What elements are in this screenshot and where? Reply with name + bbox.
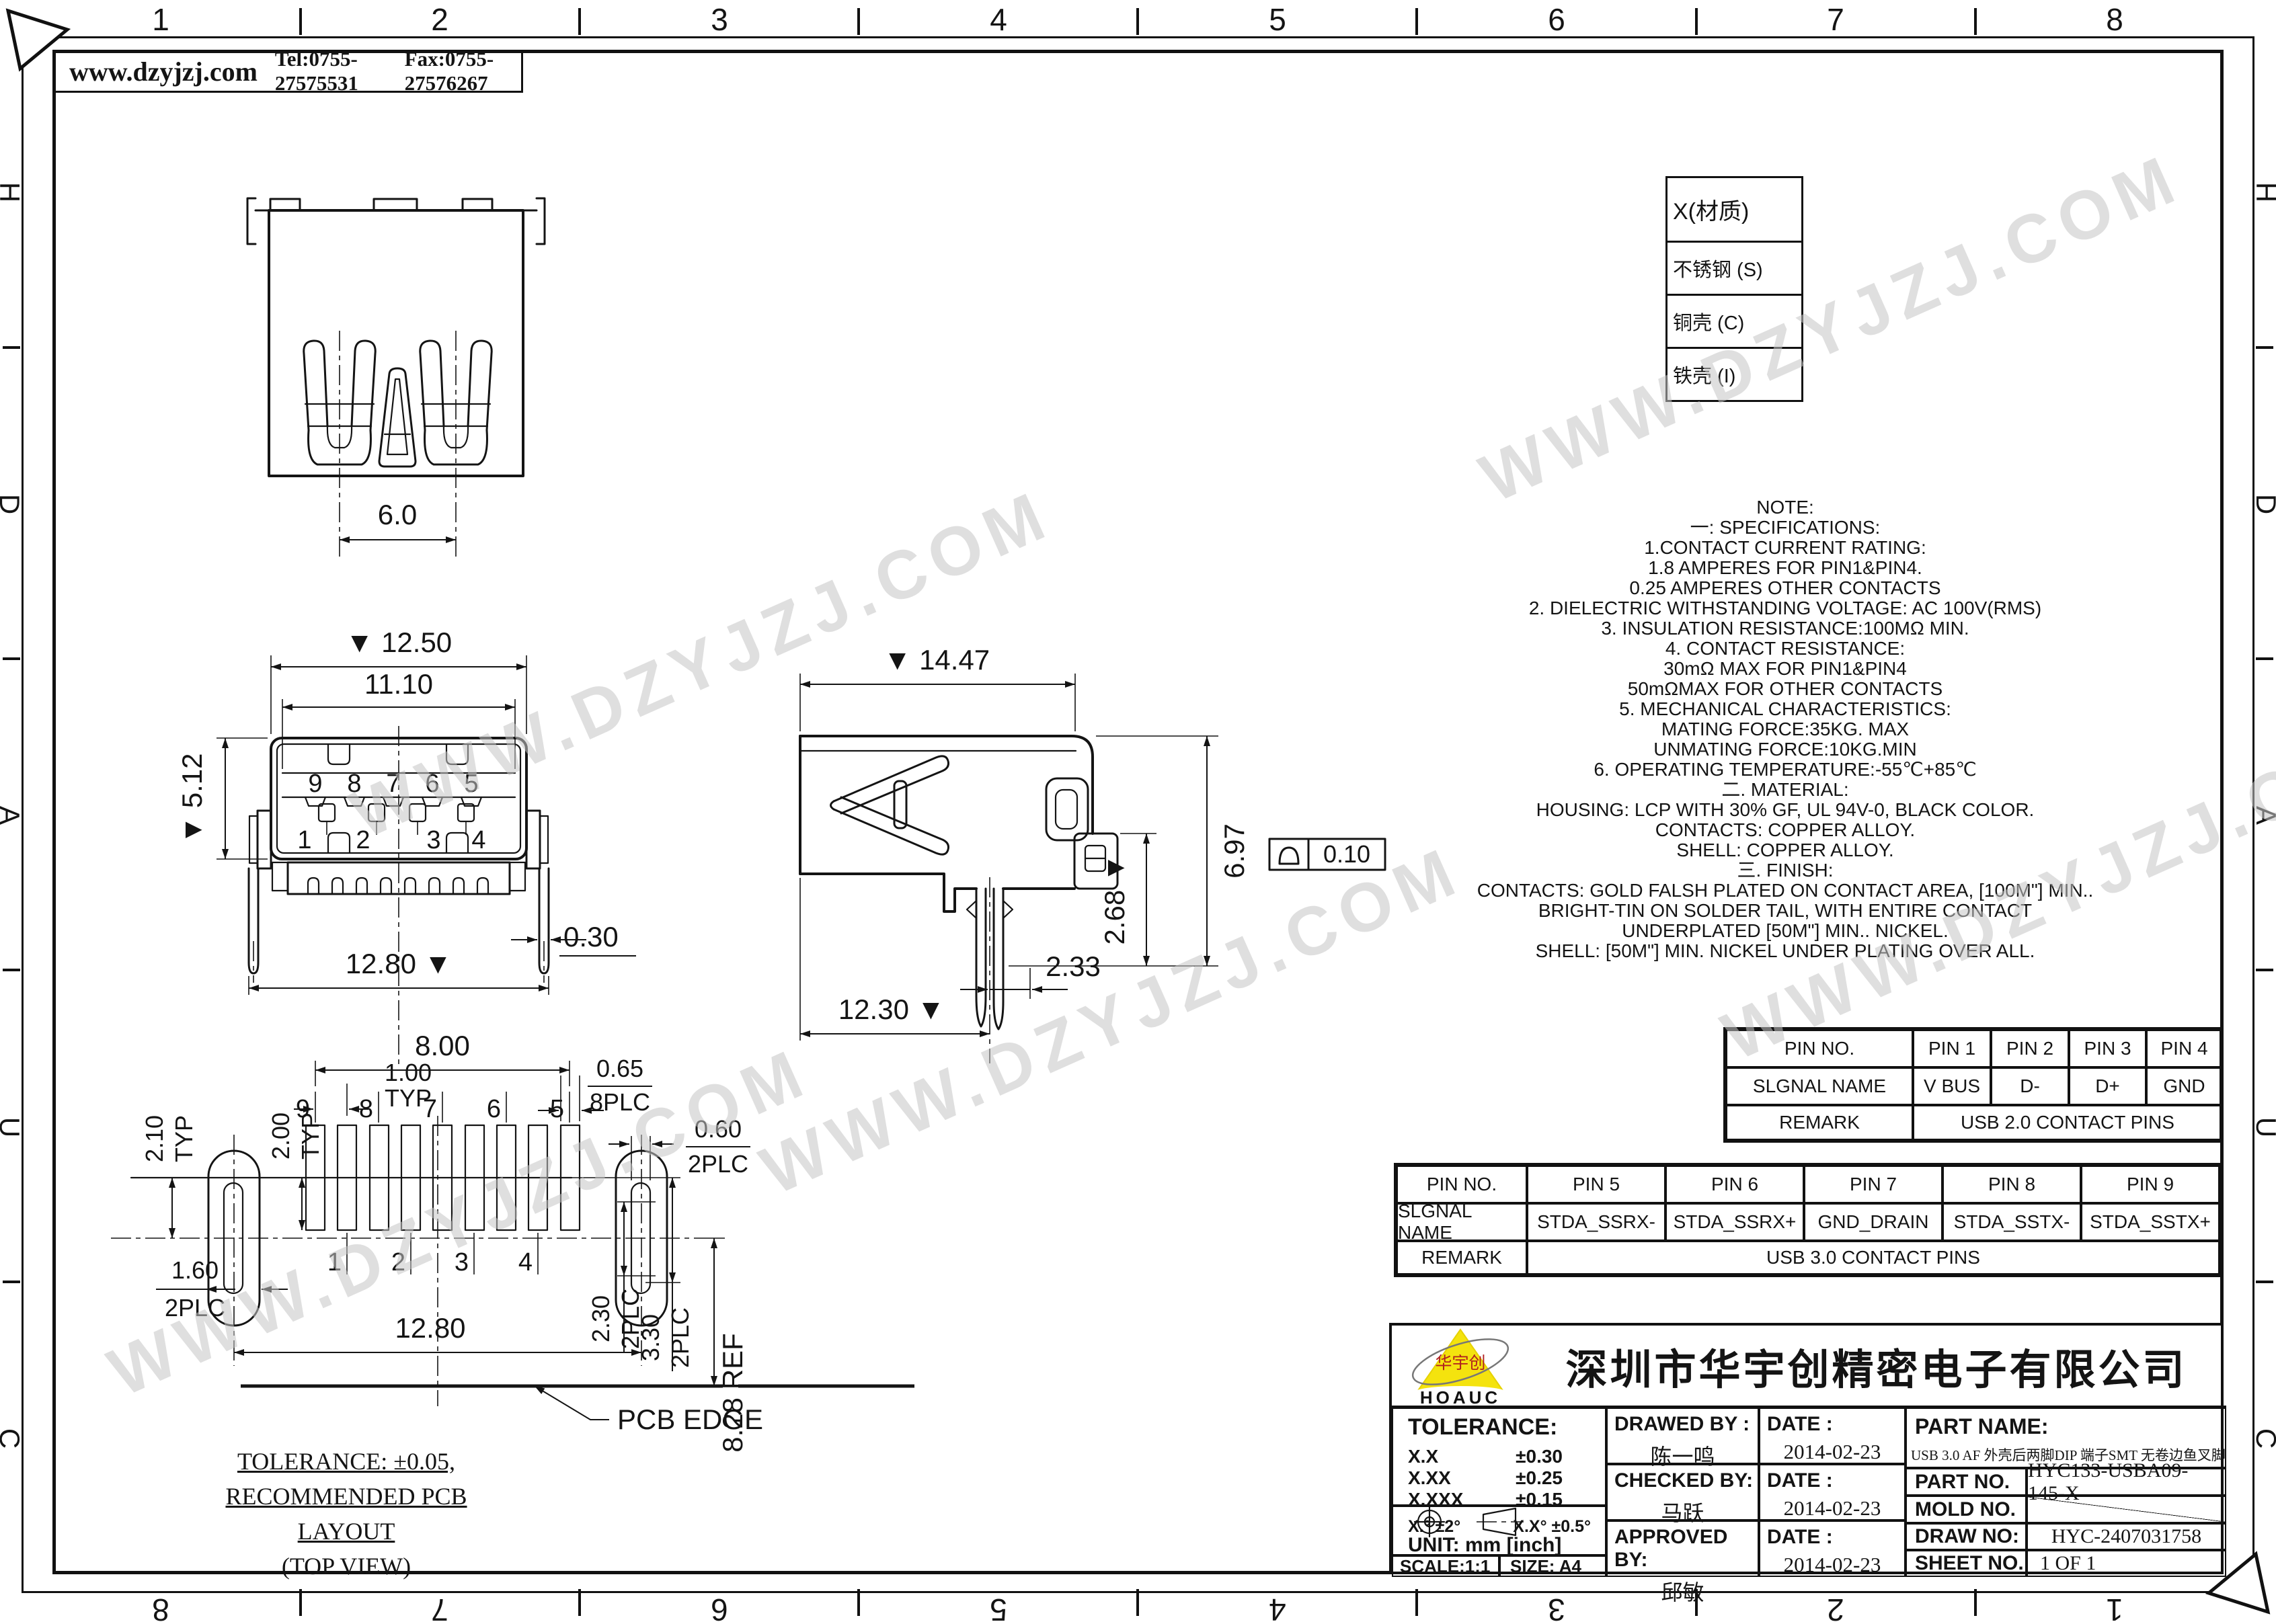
mold-no-label: MOLD NO. [1906, 1496, 2027, 1523]
table-cell: PIN 3 [2069, 1030, 2146, 1067]
table-cell: D- [1991, 1067, 2069, 1105]
note-line: BRIGHT-TIN ON SOLDER TAIL, WITH ENTIRE C… [1328, 901, 2242, 921]
draw-no-label: DRAW NO: [1906, 1523, 2027, 1550]
zone-number-top: 1 [141, 1, 181, 38]
dim-layout-b-note: 2PLC [666, 1307, 694, 1368]
pin-table-usb2: PIN NO. PIN 1 PIN 2 PIN 3 PIN 4 SLGNAL N… [1723, 1027, 2222, 1143]
zone-letter-left: C [0, 1425, 26, 1452]
material-row: 铁壳 (I) [1667, 349, 1801, 400]
profile-symbol-icon [1280, 848, 1298, 864]
dim-layout-pitch: 1.00 [385, 1059, 432, 1086]
table-cell: PIN 2 [1991, 1030, 2069, 1067]
pin-number: 8 [347, 770, 361, 798]
dim-layout-pitch-note: TYP [385, 1084, 432, 1112]
table-cell: PIN 8 [1943, 1166, 2081, 1203]
note-line: 0.25 AMPERES OTHER CONTACTS [1328, 578, 2242, 598]
dim-layout-row1-note: TYP [170, 1115, 198, 1162]
dim-side-bottom: 12.30 ▼ [838, 993, 945, 1025]
sheet-no-label: SHEET NO. [1906, 1550, 2027, 1577]
pad-number: 2 [391, 1248, 405, 1276]
pin-number: 9 [308, 770, 322, 798]
table-cell: USB 2.0 CONTACT PINS [1913, 1105, 2222, 1140]
zone-number-bottom: 6 [699, 1592, 740, 1624]
material-row: 铜壳 (C) [1667, 296, 1801, 349]
dim-front-height: ▼ 5.12 [176, 754, 208, 844]
zone-number-top: 7 [1815, 1, 1856, 38]
note-line: 50mΩMAX FOR OTHER CONTACTS [1328, 679, 2242, 699]
tolerance-row: X.X±0.30 [1408, 1446, 1563, 1467]
note-line: 5. MECHANICAL CHARACTERISTICS: [1328, 699, 2242, 719]
zone-tick [2256, 346, 2273, 349]
part-no-label: PART NO. [1906, 1468, 2027, 1496]
table-cell: PIN 1 [1913, 1030, 1991, 1067]
zone-number-bottom: 1 [2094, 1592, 2135, 1624]
tol-val: ±0.25 [1516, 1467, 1563, 1489]
dim-layout-pad-note: 8PLC [590, 1088, 650, 1116]
dim-rear-width: 6.0 [378, 499, 417, 530]
pcb-top-view-note: (TOP VIEW) [205, 1549, 487, 1584]
zone-number-top: 4 [978, 1, 1019, 38]
zone-letter-right: A [2250, 802, 2276, 829]
table-cell: REMARK [1726, 1105, 1913, 1140]
zone-letter-right: H [2250, 179, 2276, 206]
note-line: CONTACTS: COPPER ALLOY. [1328, 820, 2242, 840]
note-line: 三. FINISH: [1328, 860, 2242, 881]
dim-layout-span: 8.00 [415, 1030, 470, 1061]
zone-tick [857, 1589, 860, 1616]
pin-number: 6 [425, 770, 439, 798]
note-line: 一: SPECIFICATIONS: [1328, 518, 2242, 538]
dim-layout-row1: 2.10 [141, 1115, 168, 1162]
zone-tick [578, 8, 581, 35]
label-text: SHEET NO. [1915, 1552, 2024, 1575]
logo-cell: 华宇创 HOAUC [1392, 1326, 1526, 1408]
date-value: 2014-02-23 [1760, 1553, 1904, 1577]
note-line: 2. DIELECTRIC WITHSTANDING VOLTAGE: AC 1… [1328, 598, 2242, 618]
pad-number: 1 [327, 1248, 342, 1276]
zone-letter-left: D [0, 491, 26, 518]
table-cell: USB 3.0 CONTACT PINS [1527, 1241, 2220, 1274]
latch-spring [831, 756, 949, 854]
zone-letter-right: U [2250, 1114, 2276, 1141]
date-cell: DATE : 2014-02-23 [1759, 1464, 1906, 1520]
zone-letter-left: A [0, 802, 26, 829]
zone-letter-right: C [2250, 1425, 2276, 1452]
dim-layout-oval-note: 2PLC [165, 1294, 225, 1322]
zone-letter-right: D [2250, 491, 2276, 518]
drawed-by-label: DRAWED BY : [1608, 1409, 1758, 1436]
dim-side-top: ▼ 14.47 [884, 644, 990, 676]
note-line: 1.8 AMPERES FOR PIN1&PIN4. [1328, 558, 2242, 578]
zone-number-top: 2 [420, 1, 460, 38]
dim-front-outer: ▼ 12.50 [346, 626, 452, 658]
note-line: 1.CONTACT CURRENT RATING: [1328, 538, 2242, 558]
dim-layout-total: 12.80 [395, 1312, 465, 1344]
corner-mark-topleft [0, 0, 77, 77]
mold-no-value-empty [2027, 1496, 2226, 1523]
material-table: X(材质) 不锈钢 (S) 铜壳 (C) 铁壳 (I) [1665, 176, 1803, 402]
date-cell: DATE : 2014-02-23 [1759, 1408, 1906, 1464]
dim-layout-row2-note: TYP [297, 1112, 324, 1160]
note-line: HOUSING: LCP WITH 30% GF, UL 94V-0, BLAC… [1328, 800, 2242, 820]
pad-number: 5 [550, 1095, 564, 1123]
pin-number: 3 [426, 826, 440, 854]
table-cell: V BUS [1913, 1067, 1991, 1105]
dim-layout-pad: 0.65 [596, 1055, 643, 1082]
pcb-recommended-note: RECOMMENDED PCB LAYOUT [205, 1479, 487, 1549]
zone-number-top: 8 [2094, 1, 2135, 38]
zone-tick [2256, 969, 2273, 971]
zone-number-top: 5 [1257, 1, 1298, 38]
note-line: CONTACTS: GOLD FALSH PLATED ON CONTACT A… [1328, 881, 2242, 901]
table-cell: STDA_SSRX+ [1665, 1203, 1804, 1241]
projection-symbols [1409, 1508, 1591, 1535]
pcb-edge-label: PCB EDGE [617, 1404, 763, 1435]
date-cell: DATE : 2014-02-23 [1759, 1520, 1906, 1577]
dim-layout-slot: 0.60 [695, 1115, 742, 1143]
date-value: 2014-02-23 [1760, 1440, 1904, 1464]
dim-layout-b: 3.30 [637, 1314, 664, 1361]
zone-number-bottom: 7 [420, 1592, 460, 1624]
date-label: DATE : [1760, 1409, 1904, 1436]
zone-tick [1136, 8, 1139, 35]
unit-cell: UNIT: mm [inch] [1392, 1506, 1606, 1555]
header-contact-box: www.dzyjzj.com Tel:0755-27575531 Fax:075… [52, 50, 523, 93]
tol-key: X.X [1408, 1446, 1438, 1467]
pad-number: 6 [487, 1095, 501, 1123]
tol-key: X.XX [1408, 1467, 1451, 1489]
table-cell: STDA_SSRX- [1527, 1203, 1665, 1241]
tel-text: Tel:0755-27575531 [275, 47, 387, 95]
drawed-by-cell: DRAWED BY : 陈一鸣 [1606, 1408, 1759, 1464]
pin-number: 4 [471, 826, 485, 854]
pad-number: 4 [518, 1248, 533, 1276]
label-text: MOLD NO. [1915, 1498, 2016, 1521]
dim-layout-oval: 1.60 [171, 1256, 219, 1284]
center-contact [379, 368, 416, 466]
part-no-value: HYC133-USBA09-145-X [2027, 1468, 2226, 1496]
pin-number: 2 [356, 826, 370, 854]
company-logo: 华宇创 HOAUC [1397, 1327, 1524, 1406]
date-value: 2014-02-23 [1760, 1496, 1904, 1520]
material-row: 不锈钢 (S) [1667, 243, 1801, 296]
note-line: MATING FORCE:35KG. MAX [1328, 719, 2242, 739]
note-line: 30mΩ MAX FOR PIN1&PIN4 [1328, 659, 2242, 679]
dim-layout-row2: 2.00 [267, 1112, 295, 1160]
note-line: 6. OPERATING TEMPERATURE:-55℃+85℃ [1328, 760, 2242, 780]
scale-cell: SCALE:1:1 [1392, 1555, 1499, 1577]
note-line: SHELL: [50M"] MIN. NICKEL UNDER PLATING … [1328, 941, 2242, 961]
zone-tick [578, 1589, 581, 1616]
tolerance-title: TOLERANCE: [1408, 1414, 1605, 1440]
dim-side-fork: 2.33 [1046, 950, 1101, 982]
zone-number-bottom: 5 [978, 1592, 1019, 1624]
pin-number: 7 [386, 770, 400, 798]
size-cell: SIZE: A4 [1499, 1555, 1606, 1577]
zone-tick [1415, 1589, 1418, 1616]
pin-table-usb3: PIN NO. PIN 5 PIN 6 PIN 7 PIN 8 PIN 9 SL… [1394, 1163, 2222, 1277]
tol-val: ±0.30 [1516, 1446, 1563, 1467]
table-cell: GND [2146, 1067, 2222, 1105]
table-cell: PIN NO. [1397, 1166, 1527, 1203]
logo-brand-text: 华宇创 [1435, 1354, 1485, 1373]
table-cell: PIN 9 [2081, 1166, 2220, 1203]
pin-number: 1 [297, 826, 311, 854]
dim-front-leg: 0.30 [563, 921, 619, 952]
pcb-tolerance-note: TOLERANCE: ±0.05, [205, 1444, 487, 1479]
zone-tick [1415, 8, 1418, 35]
zone-number-bottom: 4 [1257, 1592, 1298, 1624]
note-line: 4. CONTACT RESISTANCE: [1328, 639, 2242, 659]
approved-by-label: APPROVED BY: [1608, 1522, 1758, 1572]
dim-layout-slot-note: 2PLC [688, 1150, 748, 1178]
notes-block: NOTE: 一: SPECIFICATIONS: 1.CONTACT CURRE… [1328, 497, 2242, 961]
zone-letter-left: H [0, 179, 26, 206]
company-name: 深圳市华宇创精密电子有限公司 [1526, 1326, 2226, 1408]
date-label: DATE : [1760, 1522, 1904, 1549]
zone-tick [1695, 8, 1698, 35]
checked-by-label: CHECKED BY: [1608, 1465, 1758, 1492]
tolerance-cell: TOLERANCE: X.X±0.30 X.XX±0.25 X.XXX±0.15… [1392, 1408, 1606, 1506]
part-name-label: PART NAME: [1907, 1409, 2225, 1439]
table-cell: STDA_SSTX+ [2081, 1203, 2220, 1241]
zone-letter-left: U [0, 1114, 26, 1141]
draw-no-value: HYC-2407031758 [2027, 1523, 2226, 1550]
note-line: 二. MATERIAL: [1328, 780, 2242, 800]
table-cell: STDA_SSTX- [1943, 1203, 2081, 1241]
zone-number-bottom: 2 [1815, 1592, 1856, 1624]
side-view-drawing: ▼ 14.47 6.97 2.68 ▼ 0.10 2.33 12.30 ▼ [740, 632, 1419, 1069]
dim-front-span: 12.80 ▼ [346, 948, 452, 979]
drawing-sheet: 1 2 3 4 5 6 7 8 8 7 6 5 4 3 2 1 H D A U … [0, 0, 2276, 1624]
label-text: PART NO. [1915, 1471, 2010, 1494]
material-header: X(材质) [1667, 178, 1801, 243]
zone-number-top: 3 [699, 1, 740, 38]
zone-tick [2256, 1281, 2273, 1283]
table-cell: PIN NO. [1726, 1030, 1913, 1067]
zone-tick [3, 969, 20, 971]
checked-by-cell: CHECKED BY: 马跃 [1606, 1464, 1759, 1520]
pad-number: 3 [455, 1248, 469, 1276]
note-line: UNMATING FORCE:10KG.MIN [1328, 739, 2242, 760]
table-cell: PIN 4 [2146, 1030, 2222, 1067]
sheet-no-value: 1 OF 1 [2027, 1550, 2226, 1577]
label-text: DRAW NO: [1915, 1525, 2019, 1548]
note-line: NOTE: [1328, 497, 2242, 518]
table-cell: GND_DRAIN [1804, 1203, 1943, 1241]
zone-tick [3, 657, 20, 660]
table-cell: SLGNAL NAME [1397, 1203, 1527, 1241]
pin-number: 5 [464, 770, 478, 798]
dim-side-height: 6.97 [1218, 823, 1250, 879]
zone-tick [1974, 1589, 1977, 1616]
zone-tick [299, 1589, 302, 1616]
note-line: UNDERPLATED [50M"] MIN.. NICKEL. [1328, 921, 2242, 941]
dim-front-inner: 11.10 [364, 668, 433, 700]
rear-view-drawing: 6.0 [94, 155, 632, 578]
zone-tick [3, 1281, 20, 1283]
zone-tick [857, 8, 860, 35]
table-cell: REMARK [1397, 1241, 1527, 1274]
dim-side-step: 2.68 ▼ [1099, 854, 1130, 945]
table-cell: SLGNAL NAME [1726, 1067, 1913, 1105]
zone-tick [3, 346, 20, 349]
fax-text: Fax:0755-27576267 [405, 47, 521, 95]
note-line: 3. INSULATION RESISTANCE:100MΩ MIN. [1328, 618, 2242, 639]
dim-layout-a: 2.30 [587, 1295, 615, 1342]
note-line: SHELL: COPPER ALLOY. [1328, 840, 2242, 860]
unit-label: UNIT: mm [inch] [1408, 1534, 1561, 1557]
pcb-layout-notes: TOLERANCE: ±0.05, RECOMMENDED PCB LAYOUT… [205, 1444, 487, 1584]
table-cell: PIN 7 [1804, 1166, 1943, 1203]
zone-tick [1974, 8, 1977, 35]
logo-sub-text: HOAUC [1420, 1387, 1501, 1408]
approved-by-cell: APPROVED BY: 邱敏 [1606, 1520, 1759, 1577]
zone-number-top: 6 [1536, 1, 1577, 38]
table-cell: PIN 5 [1527, 1166, 1665, 1203]
tolerance-row: X.XX±0.25 [1408, 1467, 1563, 1489]
front-view-drawing: 9 8 7 6 5 1 2 3 4 ▼ 12.50 11.10 ▼ 5.12 0… [175, 618, 645, 1089]
approved-by-value: 邱敏 [1608, 1576, 1758, 1607]
table-cell: D+ [2069, 1067, 2146, 1105]
zone-number-bottom: 8 [141, 1592, 181, 1624]
date-label: DATE : [1760, 1465, 1904, 1492]
title-block: 华宇创 HOAUC 深圳市华宇创精密电子有限公司 TOLERANCE: X.X±… [1389, 1323, 2224, 1574]
zone-tick [1136, 1589, 1139, 1616]
table-cell: PIN 6 [1665, 1166, 1804, 1203]
website-text: www.dzyjzj.com [69, 56, 258, 87]
zone-tick [2256, 657, 2273, 660]
zone-tick [299, 8, 302, 35]
zone-number-bottom: 3 [1536, 1592, 1577, 1624]
